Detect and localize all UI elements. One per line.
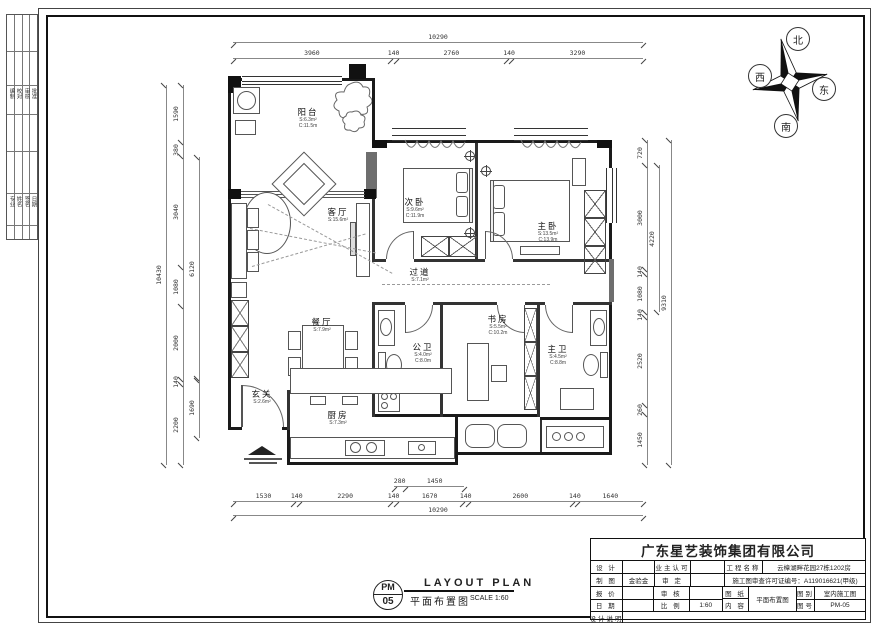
wardrobe-xbox: [584, 190, 606, 218]
title-block: 广东星艺装饰集团有限公司 设 计 业主认可 工程名称 云樟湖畔花园27栋1202…: [590, 538, 866, 620]
downlight-icon: [465, 151, 475, 161]
window: [242, 76, 342, 85]
wall: [540, 417, 612, 420]
balcony-cabinet: [235, 120, 256, 135]
wardrobe-xbox: [449, 236, 477, 257]
dresser: [572, 158, 586, 186]
desk-chair: [491, 365, 507, 382]
wardrobe-xbox: [584, 246, 606, 274]
room-perimeter: C:10.2m: [468, 331, 528, 337]
wall-pier: [372, 140, 387, 148]
sofa-back: [231, 203, 247, 279]
dim-bottom-overall: 10290: [233, 506, 643, 516]
dimension-segment: 1450: [648, 414, 657, 465]
divider: [7, 51, 37, 52]
room-label-hall: 过道 S:7.1m²: [390, 268, 450, 284]
dimension-value: 1640: [603, 492, 619, 500]
compass-label-south: 南: [774, 114, 798, 138]
wall-pier: [609, 259, 614, 302]
side-table: [231, 282, 247, 298]
pillow: [456, 172, 468, 193]
sofa-cushion: [247, 230, 259, 250]
compass-label-east: 东: [812, 77, 836, 101]
company-name: 广东星艺装饰集团有限公司: [591, 539, 865, 561]
binding-label: 姓名: [15, 196, 21, 207]
room-label-master: 主卧 S:13.5m² C:13.9m: [518, 222, 578, 243]
wall: [540, 420, 542, 452]
dimension-segment: 2290: [300, 492, 391, 501]
binding-label: 签名: [23, 196, 29, 207]
room-area: S:7.9m²: [292, 328, 352, 334]
toilet-tank: [600, 352, 608, 378]
divider: [7, 193, 37, 194]
room-perimeter: C:8.8m: [528, 361, 588, 367]
dimension-segment: 380: [184, 143, 193, 157]
curtain-icon: [520, 138, 582, 156]
compass-label-north: 北: [786, 27, 810, 51]
date-label: 日 期: [591, 600, 623, 612]
bar-stool: [342, 396, 358, 405]
dimension-segment: 2760: [396, 49, 506, 58]
pillow: [456, 196, 468, 217]
bookshelf-xbox: [524, 376, 537, 410]
binding-label: 日期: [30, 196, 36, 207]
door-leaf: [405, 305, 406, 333]
dimension-segment: 2520: [648, 317, 657, 405]
room-label-bath2: 主卫 S:4.5m² C:8.8m: [528, 345, 588, 366]
dimension-value: 2000: [172, 335, 180, 351]
bed-bench: [520, 246, 560, 255]
compass-label-west: 西: [748, 64, 772, 88]
dimension-segment: 720: [648, 140, 657, 165]
dimension-value: 2520: [636, 354, 644, 370]
dimension-segment: 1640: [578, 492, 643, 501]
dimension-value: 2760: [444, 49, 460, 57]
pillow: [493, 185, 505, 209]
dimension-value: 1080: [172, 279, 180, 295]
dimension-value: 4220: [648, 231, 656, 247]
title-block-row: 设 计 业主认可 工程名称 云樟湖畔花园27栋1202房: [591, 561, 865, 574]
dimension-segment: 2000: [184, 307, 193, 380]
dimension-segment: 280: [394, 477, 405, 486]
dimension-segment: 3000: [648, 165, 657, 270]
knob-icon: [552, 432, 561, 441]
sink-icon: [380, 318, 392, 336]
wall: [525, 302, 545, 305]
footer-rule: [404, 590, 514, 592]
dimension-value: 3000: [636, 210, 644, 226]
dim-bottom-segments: 15301402290140167014026001401640: [233, 492, 643, 502]
wall: [372, 259, 386, 262]
bedding-bundle: [497, 424, 527, 448]
design-label: 设 计: [591, 561, 623, 573]
dimension-segment: 1690: [200, 378, 209, 438]
dimension-value: 1530: [256, 492, 272, 500]
door-leaf: [572, 305, 573, 333]
dim-right-inner: 4220: [659, 165, 669, 312]
knob-icon: [576, 432, 585, 441]
drawing-number-label: 图号: [797, 600, 815, 612]
room-label-kitchen: 厨房 S:7.3m²: [308, 411, 368, 427]
scale-label: 比 例: [654, 600, 689, 612]
room-perimeter: C:13.9m: [518, 238, 578, 244]
entry-arrow-base: [249, 462, 277, 464]
dimension-segment: 1670: [396, 492, 463, 501]
wall-pier: [228, 189, 241, 199]
wall-pier: [597, 140, 612, 148]
wardrobe-xbox: [584, 218, 606, 246]
approve-value: [691, 574, 725, 586]
license-number: 施工图审查许可证编号：A119016621(甲级): [725, 574, 865, 586]
bedding-bundle: [465, 424, 495, 448]
compass-east-text: 东: [819, 82, 829, 97]
wall: [573, 302, 612, 305]
drawing-sheet: 编制 校对 审核 批准 专业 姓名 签名 日期: [0, 0, 878, 632]
dimension-segment: 9310: [672, 140, 681, 465]
room-area: S:7.3m²: [308, 421, 368, 427]
drain-icon: [381, 402, 388, 409]
binding-label: 专业: [8, 196, 14, 207]
cabinet-xbox: [231, 352, 249, 378]
dim-top-segments: 396014027601403290: [233, 49, 643, 59]
dimension-value: 10430: [155, 265, 163, 285]
dimension-segment: 3040: [184, 157, 193, 268]
faucet-icon: [418, 444, 425, 451]
compass-west-text: 西: [755, 69, 765, 84]
title-block-row: 制 图 金验金 审 定 施工图审查许可证编号：A119016621(甲级): [591, 574, 865, 587]
compass-south-text: 南: [781, 119, 791, 134]
design-value: [623, 561, 655, 573]
binding-label: 校对: [15, 88, 21, 99]
dim-bottom-sub: 2801450: [394, 477, 464, 487]
room-area: S:2.6m²: [232, 400, 292, 406]
headboard: [469, 168, 473, 223]
dimension-segment: 10290: [233, 506, 643, 515]
sightline-dashed: [382, 284, 550, 285]
shower-tray: [560, 388, 594, 410]
date-value: [623, 600, 655, 612]
dimension-segment: 3960: [233, 49, 391, 58]
draft-value: 金验金: [623, 574, 655, 586]
content-label: 内 容: [723, 599, 749, 611]
burner-icon: [366, 442, 377, 453]
window: [606, 168, 617, 223]
dim-left-inner: 6120: [199, 157, 209, 380]
check-label: 审 核: [654, 587, 689, 599]
dimension-value: 1450: [427, 477, 443, 485]
title-block-row: 设计说明: [591, 612, 865, 623]
wall: [228, 427, 242, 430]
design-note-value: [623, 612, 865, 623]
room-label-balcony: 阳台 S:6.3m² C:11.5m: [278, 108, 338, 129]
dimension-value: 2200: [172, 417, 180, 433]
dimension-segment: 10290: [233, 33, 643, 42]
owner-approval-value: [691, 561, 725, 573]
layout-plan-title-en: LAYOUT PLAN: [424, 577, 534, 589]
binding-label: 批准: [30, 88, 36, 99]
dimension-value: 1670: [422, 492, 438, 500]
dimension-segment: 2200: [184, 385, 193, 465]
sheet-number-bubble: PM 05: [373, 580, 403, 610]
owner-approval-label: 业主认可: [655, 561, 691, 573]
dimension-value: 2290: [337, 492, 353, 500]
room-label-bath1: 公卫 S:4.0m² C:8.0m: [393, 343, 453, 364]
chair: [288, 331, 301, 350]
dimension-value: 1590: [172, 106, 180, 122]
door-leaf: [413, 231, 414, 259]
drawing-type-value: 室内施工图: [815, 587, 865, 599]
divider: [7, 85, 37, 86]
downlight-icon: [481, 166, 491, 176]
binding-label: 审核: [23, 88, 29, 99]
dim-top-overall: 10290: [233, 33, 643, 43]
chair: [345, 331, 358, 350]
sink-icon: [593, 318, 605, 336]
washing-machine-drum-icon: [237, 91, 256, 110]
draft-label: 制 图: [591, 574, 623, 586]
curtain-icon: [404, 138, 466, 156]
dimension-value: 280: [394, 477, 406, 485]
room-label-bedroom2: 次卧 S:9.6m² C:11.9m: [385, 198, 445, 219]
dimension-value: 1080: [636, 286, 644, 302]
dimension-value: 720: [636, 147, 644, 159]
layout-plan-scale: SCALE 1:60: [470, 595, 509, 602]
design-note-label: 设计说明: [591, 612, 623, 623]
dimension-segment: 2600: [469, 492, 573, 501]
sofa-cushion: [247, 208, 259, 228]
wall: [458, 452, 612, 455]
desk: [467, 343, 489, 401]
divider: [7, 151, 37, 152]
dimension-value: 1450: [636, 432, 644, 448]
dimension-segment: 1530: [233, 492, 294, 501]
quote-value: [623, 587, 655, 599]
dim-left-inner: 1690: [199, 378, 209, 438]
knob-icon: [564, 432, 573, 441]
wall: [455, 414, 458, 465]
dimension-value: 10290: [428, 33, 448, 41]
wardrobe-xbox: [421, 236, 449, 257]
sheet-code-top: PM: [381, 581, 395, 594]
wall-pier: [349, 64, 366, 79]
wall: [414, 259, 478, 262]
wall: [287, 462, 458, 465]
dimension-segment: 4220: [660, 165, 669, 312]
room-perimeter: C:11.5m: [278, 124, 338, 130]
drain-icon: [390, 393, 397, 400]
title-block-row: 报 价 审 核 日 期 比 例 1:60 图 纸 内 容 平面布置图: [591, 587, 865, 612]
entry-arrow-icon: [248, 446, 276, 455]
layout-plan-title-cn: 平面布置图: [410, 593, 470, 608]
sheet-label: 图 纸: [723, 587, 749, 599]
scale-value: 1:60: [690, 600, 723, 612]
quote-label: 报 价: [591, 587, 623, 599]
wall: [372, 78, 375, 143]
wall-pier: [364, 189, 376, 199]
dimension-value: 6120: [188, 261, 196, 277]
dimension-segment: 1080: [648, 275, 657, 313]
sofa-cushion: [247, 252, 259, 272]
burner-icon: [350, 442, 361, 453]
room-perimeter: C:11.9m: [385, 214, 445, 220]
dim-right-overall: 9310: [671, 140, 681, 465]
dimension-segment: 260: [648, 405, 657, 414]
room-area: S:7.1m²: [390, 278, 450, 284]
drawing-type-label: 图别: [797, 587, 815, 599]
dimension-segment: 10430: [167, 85, 176, 465]
dimension-value: 9310: [660, 295, 668, 311]
drawing-number-value: PM-05: [815, 600, 865, 612]
check-value: [690, 587, 723, 599]
dimension-value: 2600: [512, 492, 528, 500]
dim-left-overall: 10430: [166, 85, 176, 465]
dimension-value: 3040: [172, 204, 180, 220]
binding-label: 编制: [8, 88, 14, 99]
wall: [372, 302, 375, 417]
compass-north-text: 北: [793, 32, 803, 47]
project-name-label: 工程名称: [725, 561, 763, 573]
dimension-segment: 6120: [200, 157, 209, 380]
dimension-value: 3960: [304, 49, 320, 57]
sheet-content-value: 平面布置图: [749, 587, 797, 611]
dimension-segment: 1590: [184, 85, 193, 143]
wall: [475, 259, 485, 262]
divider: [7, 114, 37, 115]
dimension-segment: 3290: [512, 49, 643, 58]
room-perimeter: C:8.0m: [393, 359, 453, 365]
plant-icon: [332, 80, 372, 140]
kitchen-bar-counter: [290, 368, 452, 394]
divider: [7, 225, 37, 226]
cabinet-xbox: [231, 326, 249, 352]
room-label-living: 客厅 S:15.6m²: [308, 208, 368, 224]
dimension-value: 10290: [428, 506, 448, 514]
sheet-code-bottom: 05: [374, 594, 402, 608]
project-name-value: 云樟湖畔花园27栋1202房: [763, 561, 865, 573]
room-label-study: 书房 S:5.5m² C:10.2m: [468, 315, 528, 336]
door-leaf: [485, 231, 486, 259]
dim-right-segments: 7203000140108014025202601450: [647, 140, 657, 465]
approve-label: 审 定: [655, 574, 691, 586]
binding-strip: 编制 校对 审核 批准 专业 姓名 签名 日期: [6, 14, 38, 240]
room-label-entry: 玄关 S:2.6m²: [232, 390, 292, 406]
dimension-segment: 1450: [405, 477, 464, 486]
dimension-value: 1690: [188, 400, 196, 416]
cabinet-xbox: [231, 300, 249, 326]
room-area: S:15.6m²: [308, 218, 368, 224]
bar-stool: [310, 396, 326, 405]
dimension-value: 3290: [570, 49, 586, 57]
drain-icon: [381, 393, 388, 400]
wall: [372, 302, 405, 305]
entry-arrow-base: [244, 458, 282, 460]
room-label-dining: 餐厅 S:7.9m²: [292, 318, 352, 334]
